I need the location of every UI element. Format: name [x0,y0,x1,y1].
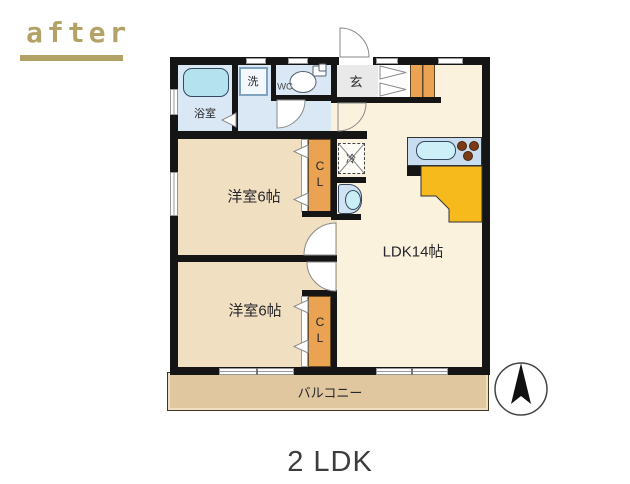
caption-2ldk: 2 LDK [170,446,490,479]
toilet-icon [290,64,326,93]
washer-label: 洗 [248,73,259,89]
bedroom-1-label: 洋室6帖 [227,186,280,207]
kitchen-counter-yellow [421,166,482,222]
washroom-door-arc-icon [338,103,366,131]
closet-1-label: CL [313,159,327,191]
compass-icon [495,363,547,415]
wc-label: WC [277,82,293,93]
stove-burners-icon [458,142,479,161]
entrance-door-arc-icon [340,28,369,57]
bedroom2-door-arc-icon [307,262,336,291]
wc-door-arc-icon [277,100,305,128]
bedroom1-door-arc-icon [304,223,336,255]
bedroom-2-label: 洋室6帖 [228,300,281,321]
entrance-label: 玄 [349,72,362,91]
fridge-label: 冷 [346,151,356,166]
bathroom-label: 浴室 [194,105,216,121]
balcony-label: バルコニー [298,383,363,402]
plan-symbols-overlay [0,0,630,484]
closet-2-label: CL [313,315,327,347]
ldk-label: LDK14帖 [383,241,444,262]
floor-plan-page: after [0,0,630,484]
